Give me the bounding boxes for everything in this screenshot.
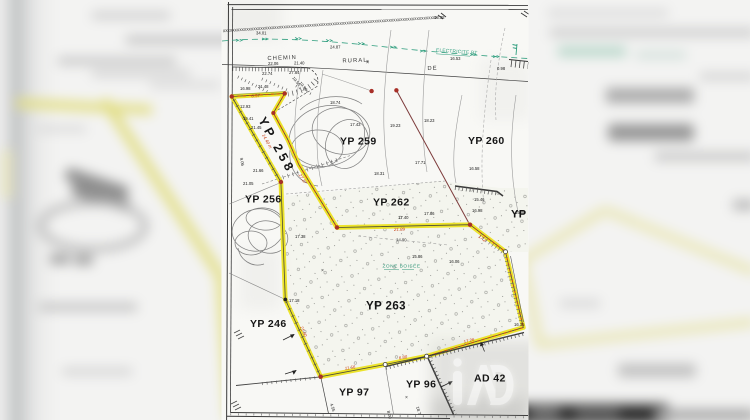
svg-text:AD 42: AD 42 xyxy=(474,373,506,385)
svg-text:18.38: 18.38 xyxy=(434,15,445,20)
svg-text:21.05: 21.05 xyxy=(243,181,254,186)
svg-text:18.31: 18.31 xyxy=(374,171,385,176)
svg-text:16.98: 16.98 xyxy=(472,208,483,213)
svg-text:21.40: 21.40 xyxy=(294,61,305,66)
svg-text:YP: YP xyxy=(511,209,526,221)
svg-text:22.74: 22.74 xyxy=(262,71,273,76)
svg-text:17.86: 17.86 xyxy=(424,211,435,216)
svg-text:YP 256: YP 256 xyxy=(245,194,282,206)
svg-text:RURAL: RURAL xyxy=(342,58,367,65)
svg-text:17.43: 17.43 xyxy=(350,122,361,127)
svg-text:YP 246: YP 246 xyxy=(250,318,287,330)
svg-text:YP 96: YP 96 xyxy=(406,379,436,391)
svg-text:19.41: 19.41 xyxy=(243,116,254,121)
svg-text:16.06: 16.06 xyxy=(449,259,460,264)
svg-text:YP 260: YP 260 xyxy=(468,135,505,147)
svg-text:12.93: 12.93 xyxy=(240,104,251,109)
svg-text:×: × xyxy=(321,268,324,274)
svg-text:21.66: 21.66 xyxy=(253,168,264,173)
svg-text:YP 262: YP 262 xyxy=(373,197,410,209)
svg-text:17.18: 17.18 xyxy=(289,298,300,303)
svg-text:15.46: 15.46 xyxy=(474,197,485,202)
svg-text:DE: DE xyxy=(427,66,437,72)
svg-text:8.57: 8.57 xyxy=(251,93,260,99)
svg-text:18.23: 18.23 xyxy=(424,118,435,123)
svg-text:18.74: 18.74 xyxy=(330,100,341,105)
svg-text:27.84: 27.84 xyxy=(289,70,300,75)
svg-text:16.35: 16.35 xyxy=(514,322,525,327)
svg-text:×: × xyxy=(405,395,408,401)
svg-text:0.98: 0.98 xyxy=(497,66,506,71)
svg-text:34.01: 34.01 xyxy=(256,31,267,36)
svg-text:22.06: 22.06 xyxy=(268,61,279,66)
svg-text:17.38: 17.38 xyxy=(295,234,306,239)
svg-text:14.50: 14.50 xyxy=(396,237,407,243)
svg-text:ZONE BOISÉE: ZONE BOISÉE xyxy=(383,263,421,270)
svg-text:16.98: 16.98 xyxy=(240,86,251,91)
svg-text:16.58: 16.58 xyxy=(469,166,480,171)
svg-text:15.86: 15.86 xyxy=(412,254,423,259)
svg-text:24.87: 24.87 xyxy=(330,45,341,50)
svg-text:17.40: 17.40 xyxy=(398,215,409,220)
svg-text:17.71: 17.71 xyxy=(415,160,426,165)
svg-text:YP 97: YP 97 xyxy=(339,387,369,399)
svg-text:YP 263: YP 263 xyxy=(366,301,406,313)
svg-text:YP 259: YP 259 xyxy=(340,136,377,148)
svg-text:21.89: 21.89 xyxy=(393,227,406,232)
svg-text:16.53: 16.53 xyxy=(450,56,461,61)
svg-text:19.23: 19.23 xyxy=(390,123,401,128)
svg-text:×: × xyxy=(366,59,369,65)
